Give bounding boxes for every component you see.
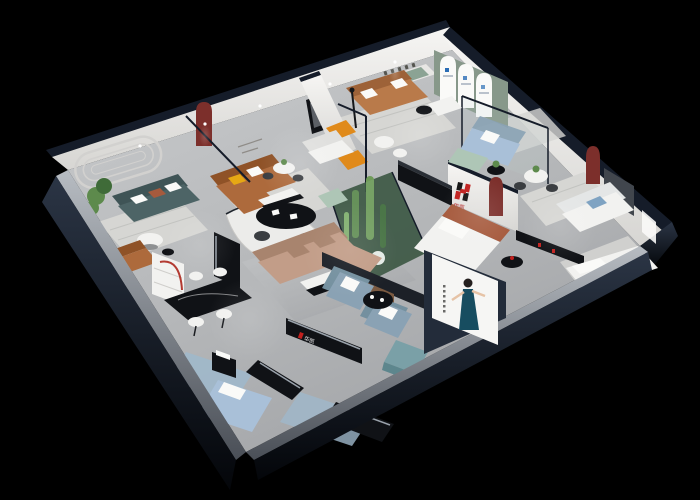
floor-light-glow — [208, 278, 292, 362]
render-canvas: 华凯 — [0, 0, 700, 500]
woman-head — [464, 279, 473, 288]
table-plant — [493, 161, 500, 168]
arch-panel-logo — [463, 76, 467, 80]
white-dining-chair — [188, 317, 204, 327]
dining-chair — [254, 231, 270, 241]
poster-text-mark — [443, 285, 446, 288]
dining-chair — [514, 182, 526, 190]
poster-text-mark — [443, 295, 446, 298]
ceiling-spotlight — [138, 144, 141, 147]
floor-lamp-head — [350, 88, 355, 93]
arch-panel-1 — [440, 56, 456, 100]
table-cup — [380, 298, 384, 302]
poster-text-mark — [443, 300, 446, 303]
tall-plant — [96, 178, 112, 194]
floor-light-glow — [440, 175, 520, 255]
showroom-isometric-scene: 华凯 — [0, 0, 700, 500]
floor-light-glow — [384, 99, 456, 171]
table-red-decor — [510, 256, 514, 260]
arch-panel-logo — [445, 68, 449, 72]
poster-text-mark — [443, 305, 446, 308]
table-plant — [533, 166, 540, 173]
wall-wash-light — [199, 125, 211, 147]
floor-light-glow — [522, 187, 598, 263]
red-arch-niche-right — [586, 146, 600, 184]
ceiling-spotlight — [258, 104, 261, 107]
table-cup — [370, 295, 374, 299]
floor-light-glow — [164, 209, 236, 281]
poster-text-mark — [443, 290, 446, 293]
arch-panel-shape — [440, 56, 456, 100]
wall-wash-light — [389, 63, 401, 85]
floor-light-glow — [260, 125, 340, 205]
black-oval-table — [256, 203, 316, 229]
poster-text-mark — [443, 310, 446, 313]
arch-panel-logo — [481, 85, 485, 89]
floor-light-glow — [302, 202, 398, 298]
ceiling-spotlight — [328, 82, 331, 85]
